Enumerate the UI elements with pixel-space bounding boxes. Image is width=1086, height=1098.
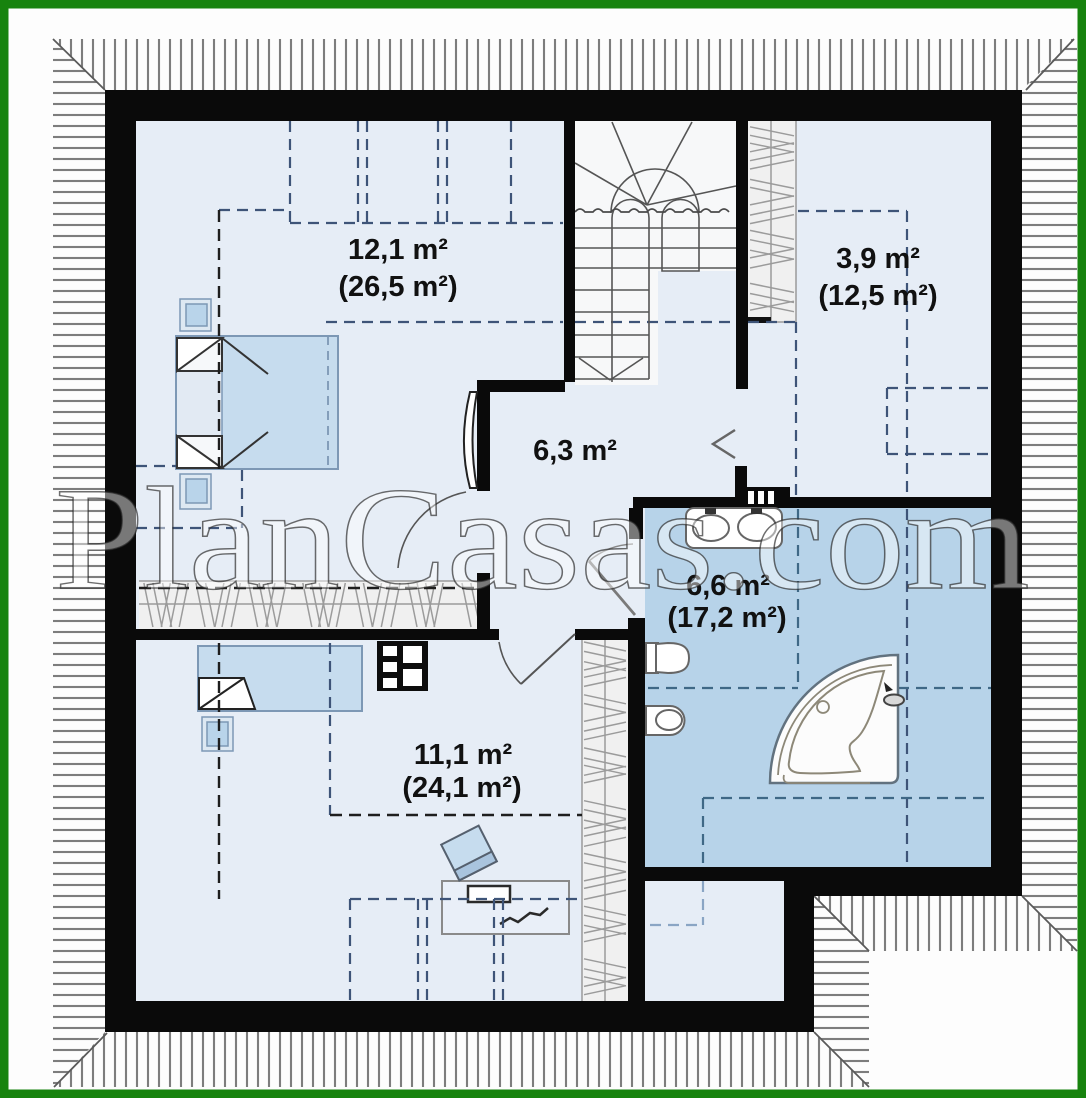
svg-text:11,1 m²: 11,1 m² [414, 739, 513, 771]
svg-text:(12,5 m²): (12,5 m²) [818, 280, 937, 312]
svg-text:(24,1 m²): (24,1 m²) [402, 772, 521, 804]
svg-text:12,1 m²: 12,1 m² [348, 234, 448, 266]
svg-text:3,9 m²: 3,9 m² [836, 243, 920, 275]
svg-text:(26,5 m²): (26,5 m²) [338, 271, 457, 303]
svg-text:PlanCasas.com: PlanCasas.com [55, 458, 1030, 621]
